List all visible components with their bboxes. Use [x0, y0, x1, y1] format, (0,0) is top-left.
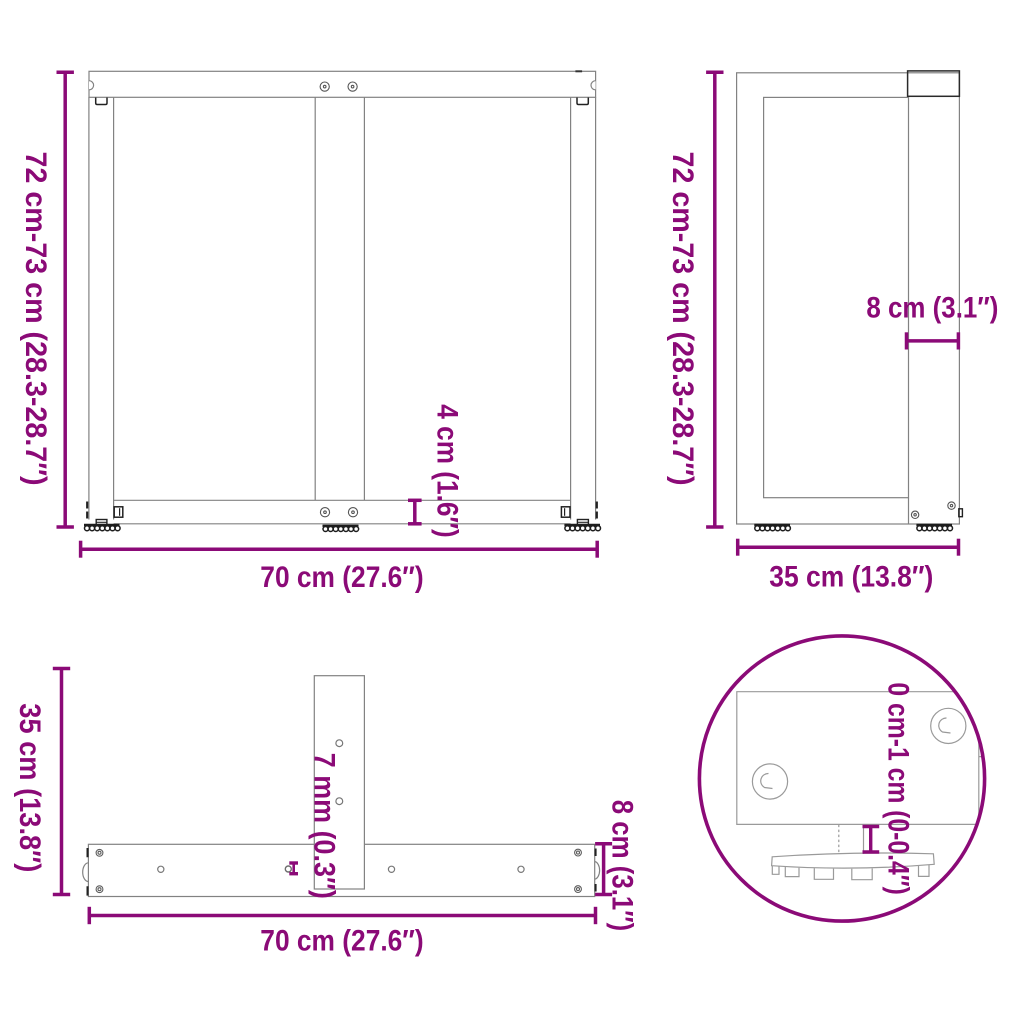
svg-text:70 cm (27.6″): 70 cm (27.6″)	[260, 561, 423, 594]
svg-text:35 cm (13.8″): 35 cm (13.8″)	[13, 703, 46, 872]
svg-text:7 mm (0.3″): 7 mm (0.3″)	[307, 753, 340, 899]
svg-text:72 cm-73 cm (28.3-28.7″): 72 cm-73 cm (28.3-28.7″)	[666, 152, 699, 486]
svg-text:0 cm-1 cm (0-0.4″): 0 cm-1 cm (0-0.4″)	[882, 682, 915, 895]
svg-text:8 cm (3.1″): 8 cm (3.1″)	[605, 800, 638, 932]
svg-text:4 cm (1.6″): 4 cm (1.6″)	[431, 404, 464, 538]
svg-text:72 cm-73 cm (28.3-28.7″): 72 cm-73 cm (28.3-28.7″)	[19, 152, 52, 486]
svg-text:35 cm (13.8″): 35 cm (13.8″)	[769, 561, 933, 594]
svg-text:8 cm (3.1″): 8 cm (3.1″)	[866, 292, 998, 325]
svg-text:70 cm (27.6″): 70 cm (27.6″)	[260, 925, 423, 958]
